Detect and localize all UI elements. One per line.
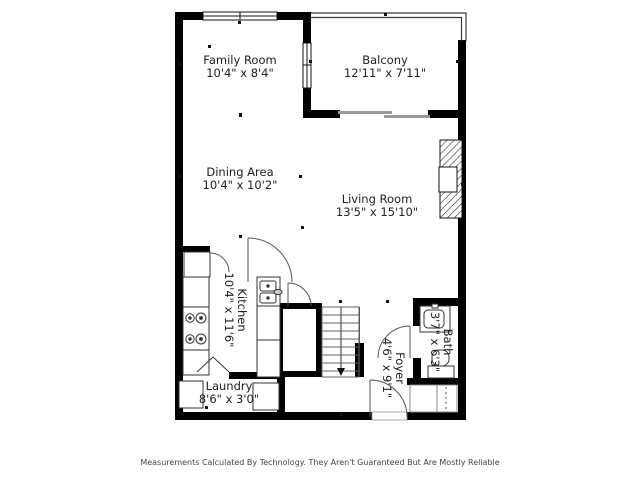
wall-bath-bottom [407, 378, 466, 385]
entry-threshold [372, 412, 407, 420]
dining-area-dims: 10'4" x 10'2" [203, 178, 278, 192]
wall-left [175, 12, 183, 420]
label-family-room: Family Room 10'4" x 8'4" [203, 53, 276, 80]
foyer-dims: 4'6" x 9'1" [380, 338, 394, 398]
wall-pantry-stub [183, 246, 210, 252]
disclaimer-text: Measurements Calculated By Technology. T… [140, 458, 499, 467]
fireplace-icon [439, 140, 462, 218]
label-living-room: Living Room 13'5" x 15'10" [336, 192, 418, 219]
family-room-dims: 10'4" x 8'4" [206, 66, 274, 80]
wall-right [458, 40, 466, 420]
floorplan-drawing: Family Room 10'4" x 8'4" Balcony 12'11" … [0, 0, 640, 480]
wall-top-a [175, 12, 203, 20]
window-family-top [203, 12, 277, 20]
wall-balcony-sill-right [428, 110, 458, 118]
balcony-dims: 12'11" x 7'11" [344, 66, 426, 80]
page-background [0, 0, 640, 480]
laundry-name: Laundry [206, 379, 253, 393]
dining-area-name: Dining Area [206, 165, 273, 179]
wall-family-balcony-top [303, 12, 311, 43]
window-family-balcony [303, 43, 311, 88]
wall-bath-top [413, 298, 466, 306]
foyer-name: Foyer [393, 352, 407, 384]
label-laundry: Laundry 8'6" x 3'0" [199, 379, 259, 406]
stove-icon [183, 307, 209, 350]
wall-balcony-sill-left [303, 110, 340, 118]
bath-dims: 3'7" x 6'3" [428, 312, 442, 372]
floorplan-page: Family Room 10'4" x 8'4" Balcony 12'11" … [0, 0, 640, 480]
living-room-name: Living Room [342, 192, 413, 206]
kitchen-name: Kitchen [235, 288, 249, 331]
understair-closet [280, 306, 319, 374]
family-room-name: Family Room [203, 53, 276, 67]
pantry-closet [184, 252, 210, 277]
laundry-dims: 8'6" x 3'0" [199, 392, 259, 406]
kitchen-dims: 10'4" x 11'6" [222, 273, 236, 348]
balcony-name: Balcony [362, 53, 408, 67]
living-room-dims: 13'5" x 15'10" [336, 205, 418, 219]
bath-name: Bath [441, 329, 455, 356]
label-dining-area: Dining Area 10'4" x 10'2" [203, 165, 278, 192]
wall-bottom-b [407, 412, 466, 420]
